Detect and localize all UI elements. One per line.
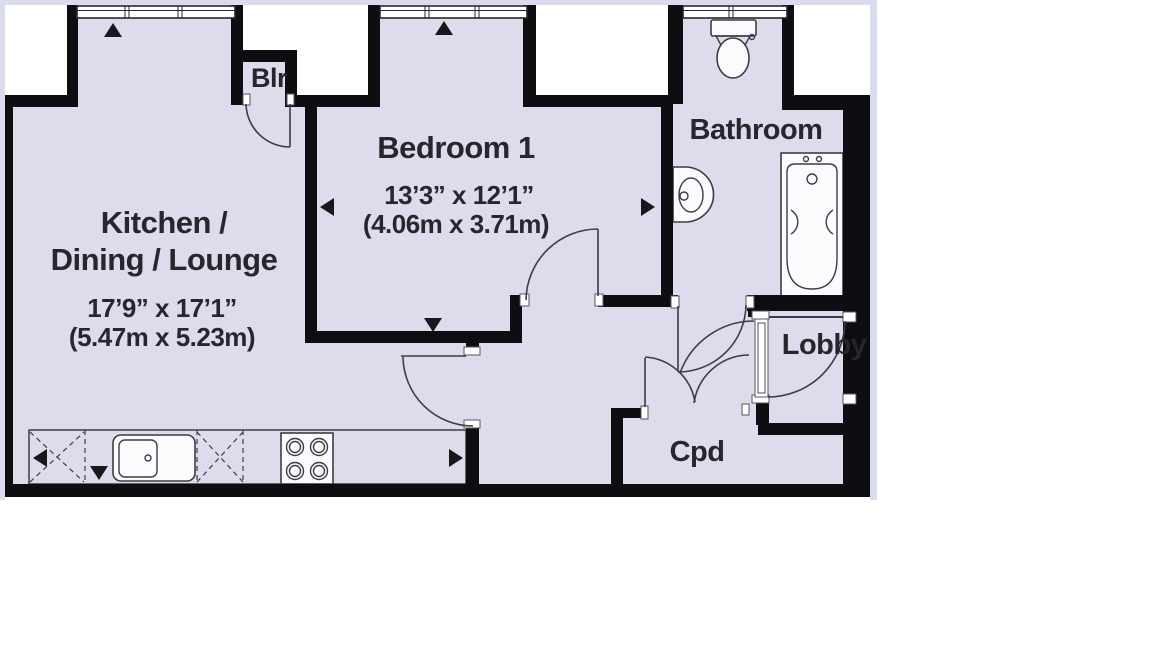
boiler-label: Blr <box>251 63 288 93</box>
cupboard-label: Cpd <box>670 436 725 468</box>
bathtub-icon <box>781 153 843 296</box>
kitchen-label-line2: Dining / Lounge <box>51 242 278 277</box>
kitchen-bay-floor <box>67 6 243 107</box>
floor-plan-svg: Kitchen / Dining / Lounge 17’9” x 17’1” … <box>0 0 877 505</box>
kitchen-sink-icon <box>113 435 195 481</box>
entrance-door-leaf <box>755 319 768 397</box>
hob-icon <box>281 433 333 484</box>
kitchen-label-line1: Kitchen / <box>101 205 228 240</box>
kitchen-dims-imperial: 17’9” x 17’1” <box>87 293 237 323</box>
window-icon <box>77 6 235 18</box>
bathroom-label: Bathroom <box>690 114 823 146</box>
kitchen-dims-metric: (5.47m x 5.23m) <box>69 322 255 352</box>
bedroom-dims-imperial: 13’3” x 12’1” <box>384 180 534 210</box>
floorplan-page: Kitchen / Dining / Lounge 17’9” x 17’1” … <box>0 0 1152 648</box>
window-icon <box>683 6 787 18</box>
floorplan-image: Kitchen / Dining / Lounge 17’9” x 17’1” … <box>0 0 877 505</box>
bedroom-label: Bedroom 1 <box>377 130 535 165</box>
window-icon <box>380 6 527 18</box>
bedroom-bay-floor <box>368 6 536 107</box>
lobby-label: Lobby <box>782 329 867 361</box>
bedroom-dims-metric: (4.06m x 3.71m) <box>363 209 549 239</box>
